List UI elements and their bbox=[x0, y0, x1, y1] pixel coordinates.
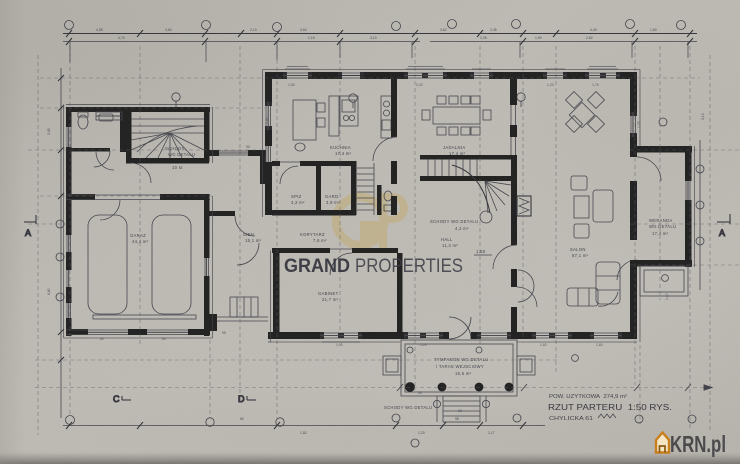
svg-text:KRN.pl: KRN.pl bbox=[670, 431, 726, 457]
svg-text:PROPERTIES: PROPERTIES bbox=[355, 256, 463, 277]
svg-text:GRAND: GRAND bbox=[284, 256, 350, 277]
